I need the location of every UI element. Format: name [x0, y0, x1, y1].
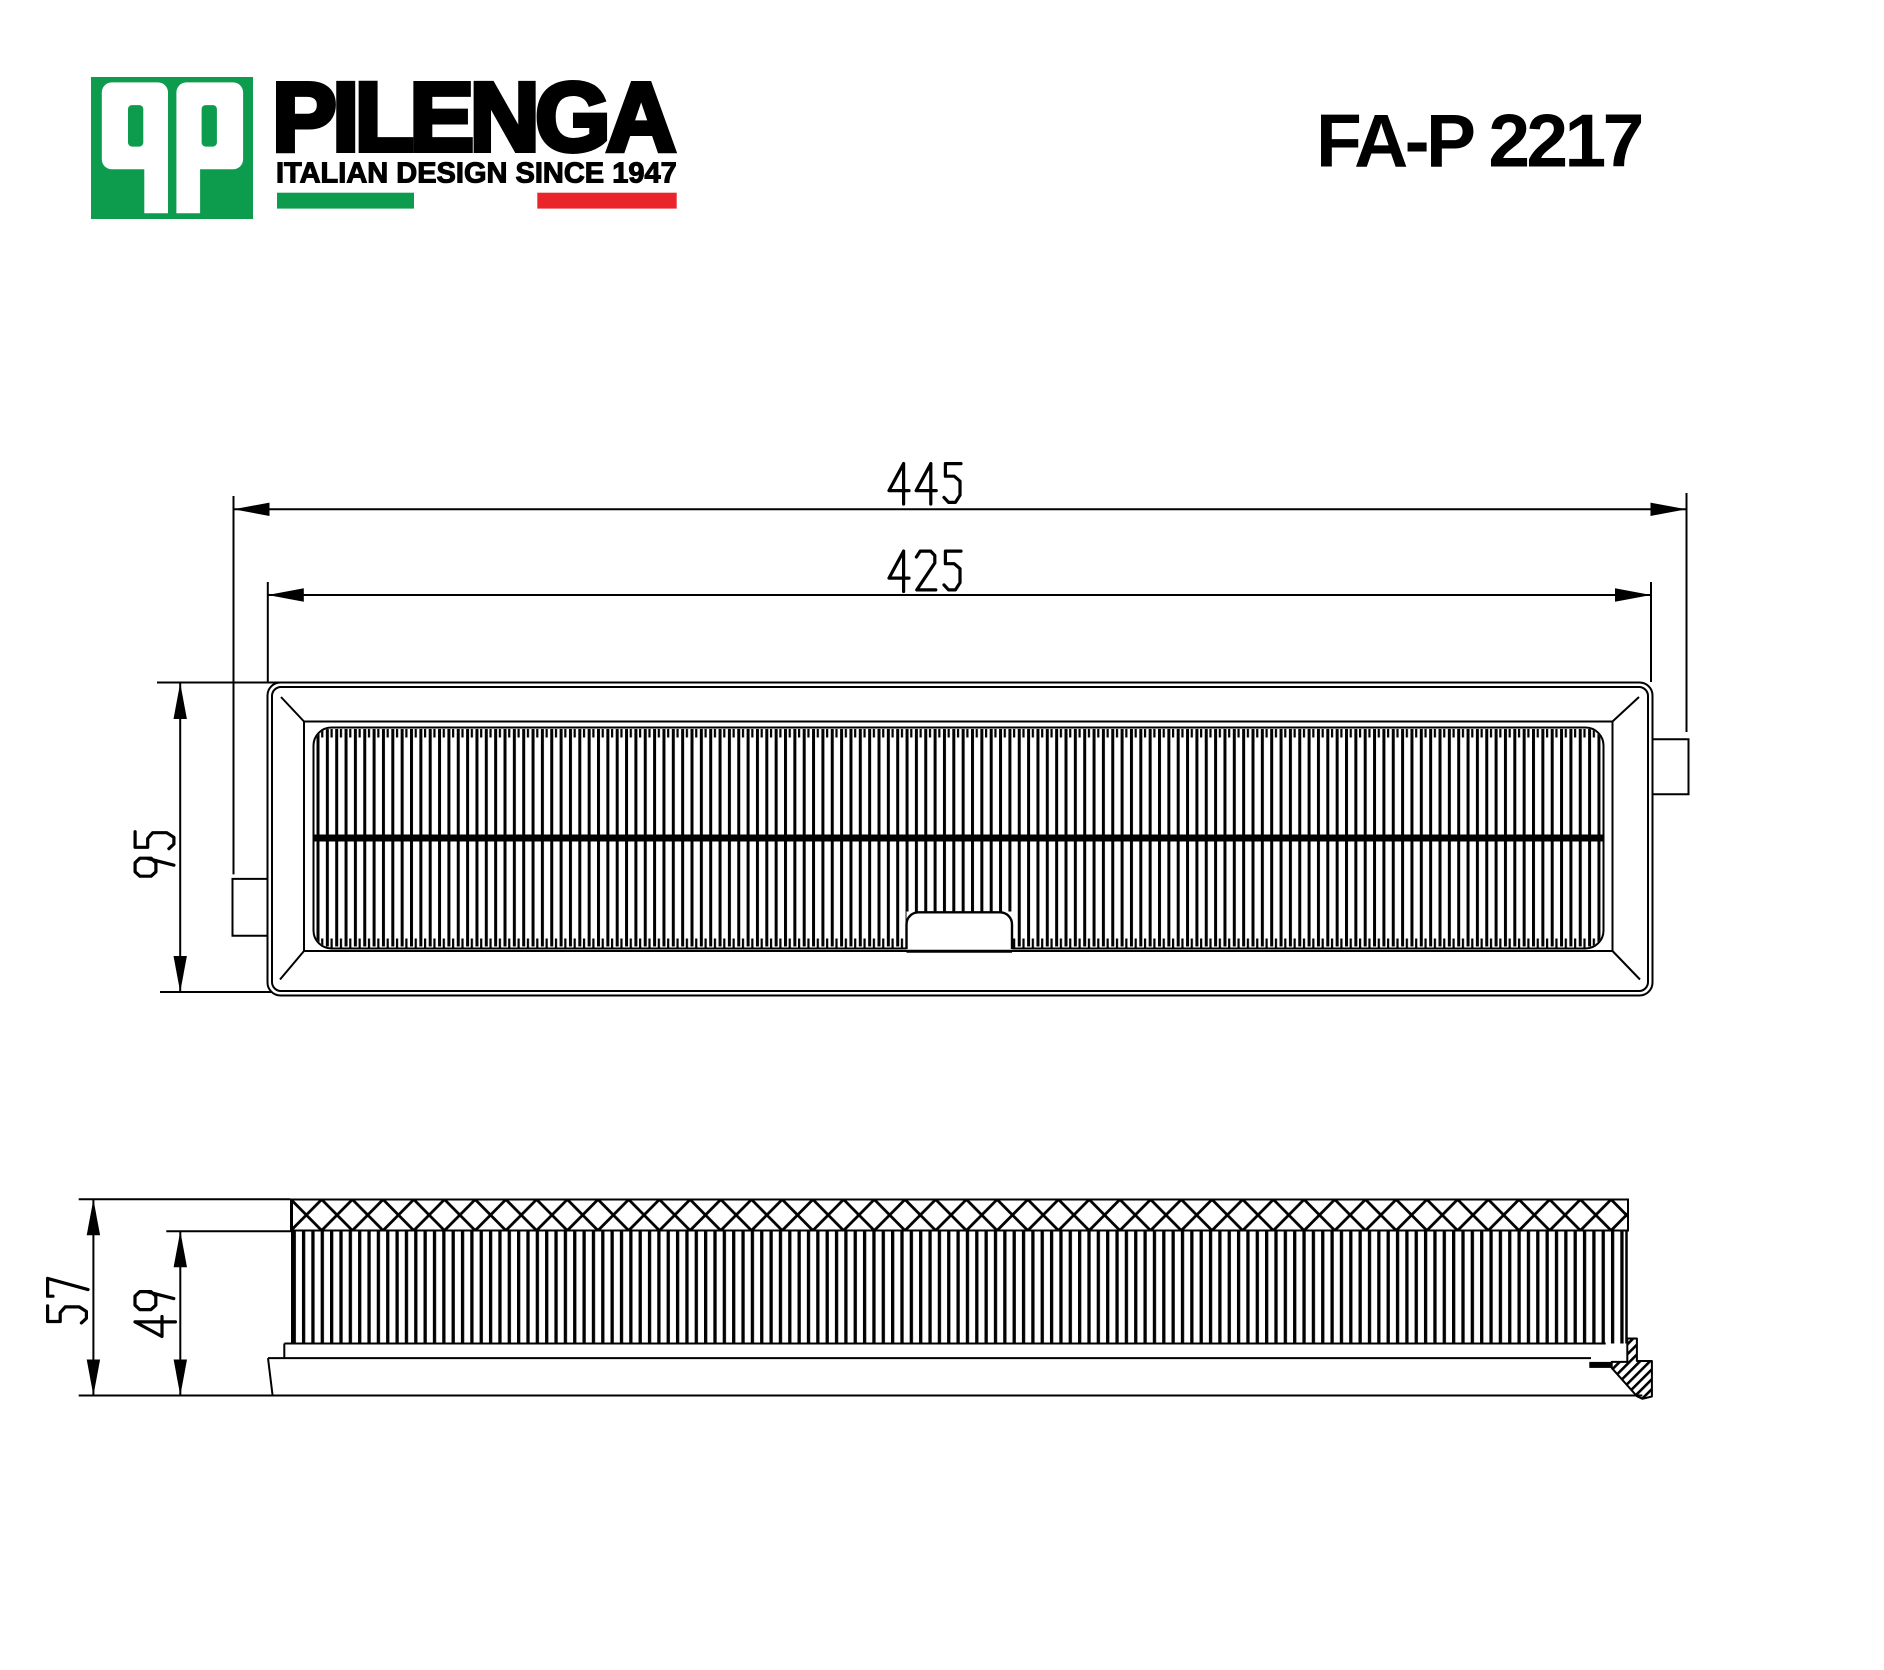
svg-text:ITALIAN DESIGN SINCE 1947: ITALIAN DESIGN SINCE 1947: [276, 158, 677, 190]
svg-text:PILENGA: PILENGA: [272, 62, 674, 171]
svg-text:FA-P 2217: FA-P 2217: [1316, 99, 1642, 183]
